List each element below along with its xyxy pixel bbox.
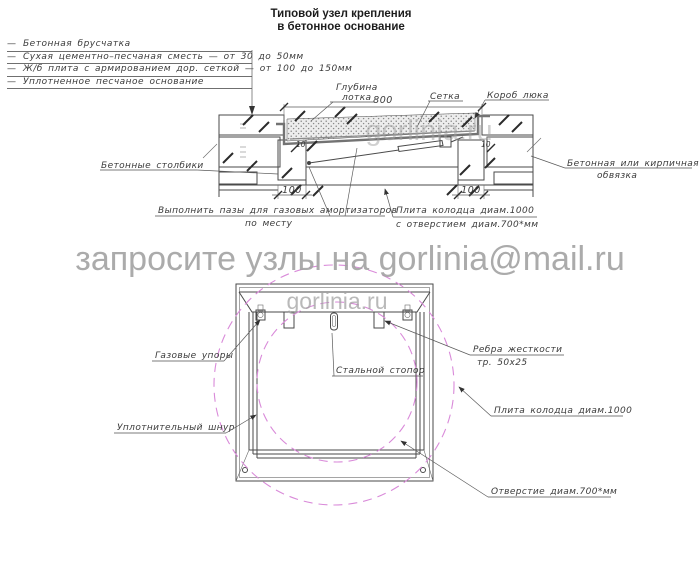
plan-labels: Газовые упоры Стальной стопор Ребра жест… bbox=[114, 320, 632, 497]
drawing-sheet: Типовой узел крепления в бетонное основа… bbox=[0, 0, 700, 568]
sand-footing-left bbox=[219, 172, 257, 184]
corner-hole-left bbox=[243, 468, 248, 473]
label-depth-line2: лотка bbox=[341, 93, 371, 103]
label-edging-line1: Бетонная или кирпичная bbox=[567, 159, 699, 169]
sand-footing-right bbox=[494, 172, 533, 184]
label-ribs-line1: Ребра жесткости bbox=[473, 345, 562, 355]
label-columns: Бетонные столбики bbox=[101, 161, 204, 171]
legend-pointer-line bbox=[249, 50, 255, 115]
watermark-email: запросите узлы на gorlinia@mail.ru bbox=[75, 240, 624, 278]
cad-drawing: 800 100 100 10 10 Глубина bbox=[0, 0, 700, 568]
dimension-100-right: 100 bbox=[452, 185, 490, 199]
label-edging-line2: обвязка bbox=[597, 171, 637, 181]
label-slab-line1: Плита колодца диам.1000 bbox=[396, 206, 534, 216]
edging-right bbox=[487, 137, 533, 167]
section-labels: Глубина лотка Сетка Короб люка Бетонные … bbox=[100, 83, 699, 230]
label-grooves-line2: по месту bbox=[245, 219, 293, 229]
label-steel-stopper: Стальной стопор bbox=[336, 366, 425, 376]
steel-stopper-detail bbox=[333, 316, 336, 327]
dim-10-left-value: 10 bbox=[296, 140, 306, 149]
paving-band-left bbox=[219, 115, 284, 135]
watermark-site-plan: gorlinia.ru bbox=[287, 288, 388, 314]
label-plan-slab: Плита колодца диам.1000 bbox=[494, 406, 632, 416]
stiffener-rib-left bbox=[284, 312, 294, 328]
watermark-site-section: gorlinia.ru bbox=[365, 115, 492, 147]
dim-100-right-value: 100 bbox=[461, 185, 481, 196]
dim-100-left-value: 100 bbox=[282, 185, 302, 196]
label-depth-line1: Глубина bbox=[336, 83, 378, 93]
label-grooves-line1: Выполнить пазы для газовых амортизаторов bbox=[158, 206, 397, 216]
label-slab-line2: с отверстием диам.700*мм bbox=[396, 220, 538, 230]
label-seal-cord: Уплотнительный шнур bbox=[117, 423, 235, 433]
dimension-100-left: 100 bbox=[272, 185, 312, 199]
dim-800-value: 800 bbox=[373, 95, 393, 106]
edging-left bbox=[219, 137, 280, 167]
label-gas-struts: Газовые упоры bbox=[155, 351, 233, 361]
label-hatch-box: Короб люка bbox=[487, 91, 549, 101]
corner-hole-right bbox=[421, 468, 426, 473]
label-mesh: Сетка bbox=[430, 92, 460, 102]
plan-inner-offset bbox=[240, 288, 430, 478]
label-ribs-line2: тр. 50х25 bbox=[477, 358, 528, 368]
label-opening: Отверстие диам.700*мм bbox=[491, 487, 617, 497]
